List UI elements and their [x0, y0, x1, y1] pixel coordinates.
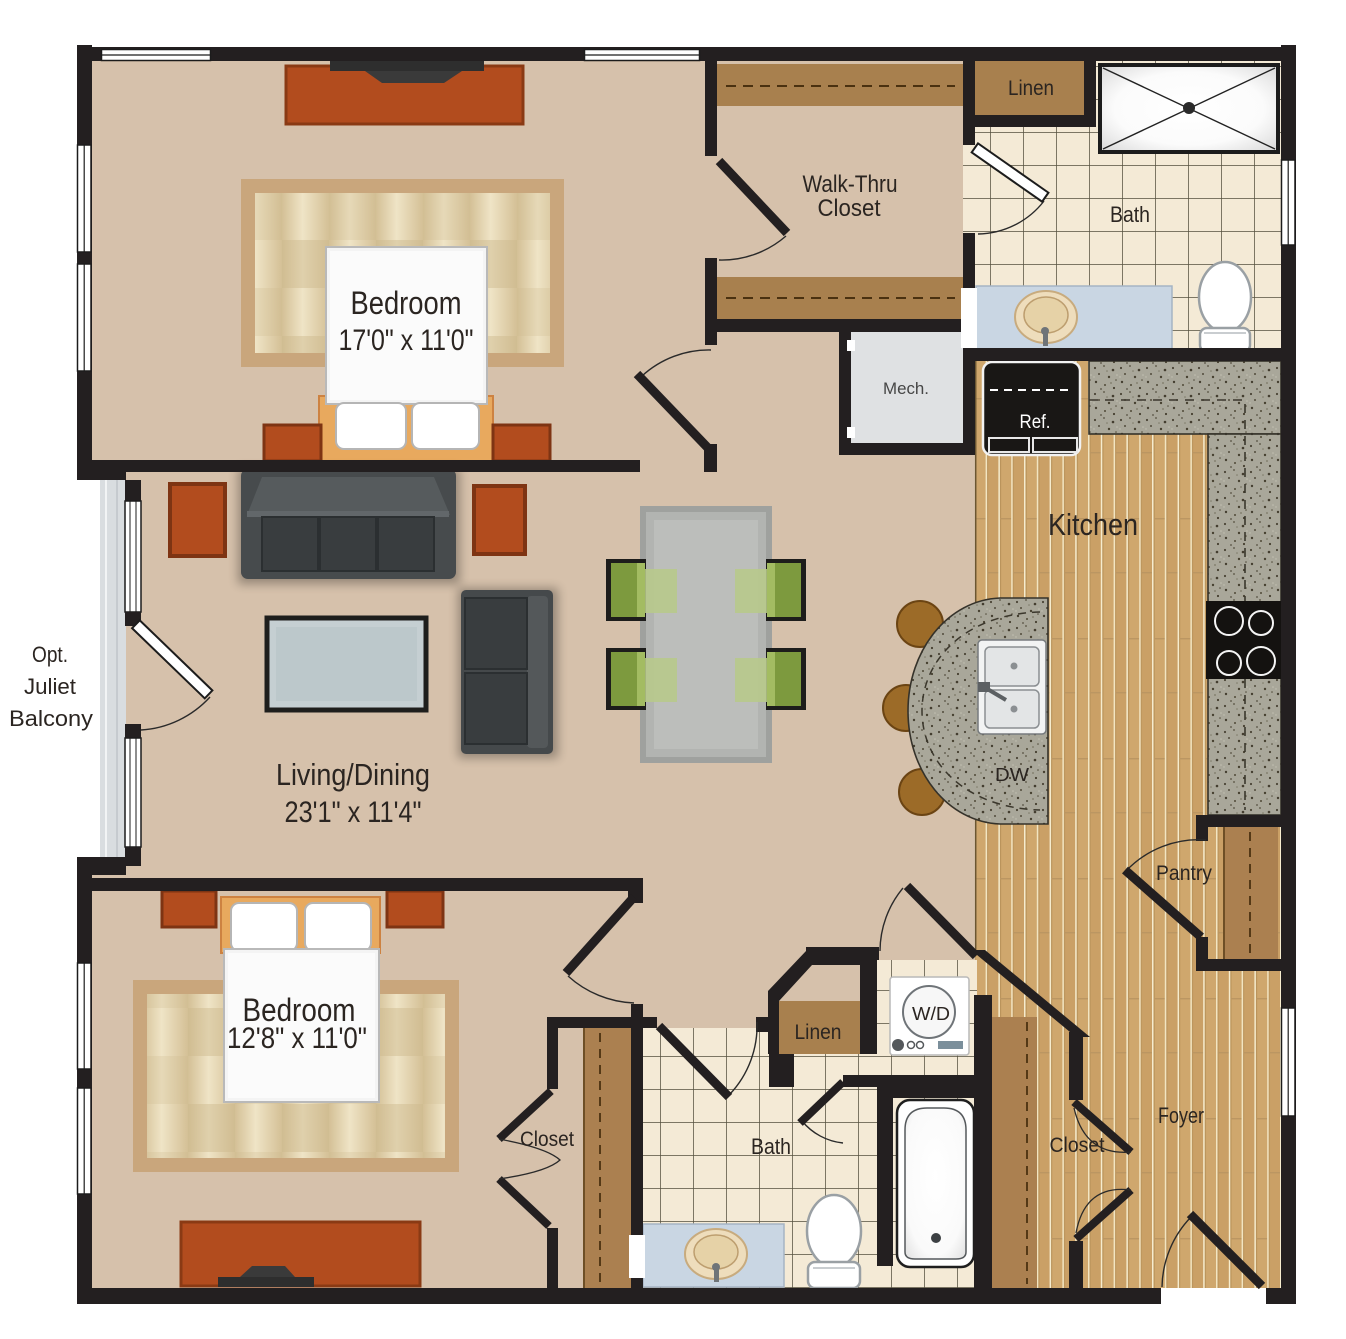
svg-text:Foyer: Foyer	[1158, 1103, 1204, 1128]
svg-text:W/D: W/D	[912, 1004, 950, 1024]
svg-text:Opt.: Opt.	[32, 642, 68, 667]
svg-text:Closet: Closet	[1050, 1134, 1105, 1157]
svg-text:Linen: Linen	[795, 1021, 842, 1044]
svg-text:Bath: Bath	[1110, 202, 1150, 227]
svg-text:Juliet: Juliet	[24, 674, 76, 699]
svg-text:Ref.: Ref.	[1020, 412, 1051, 433]
svg-text:Linen: Linen	[1008, 77, 1054, 100]
svg-text:Mech.: Mech.	[883, 379, 929, 398]
svg-text:DW: DW	[995, 765, 1029, 785]
svg-text:Kitchen: Kitchen	[1048, 507, 1138, 542]
svg-text:Pantry: Pantry	[1156, 862, 1212, 885]
svg-text:Bedroom: Bedroom	[351, 285, 462, 321]
svg-text:Living/Dining: Living/Dining	[276, 757, 430, 792]
svg-text:Walk-Thru: Walk-Thru	[803, 171, 898, 198]
svg-text:Closet: Closet	[520, 1128, 574, 1151]
svg-text:Bath: Bath	[751, 1134, 791, 1159]
svg-text:Closet: Closet	[818, 195, 881, 222]
svg-text:Balcony: Balcony	[9, 706, 93, 731]
svg-text:23'1" x 11'4": 23'1" x 11'4"	[285, 796, 422, 829]
svg-text:12'8" x 11'0": 12'8" x 11'0"	[227, 1022, 367, 1055]
svg-text:17'0" x 11'0": 17'0" x 11'0"	[339, 324, 474, 357]
